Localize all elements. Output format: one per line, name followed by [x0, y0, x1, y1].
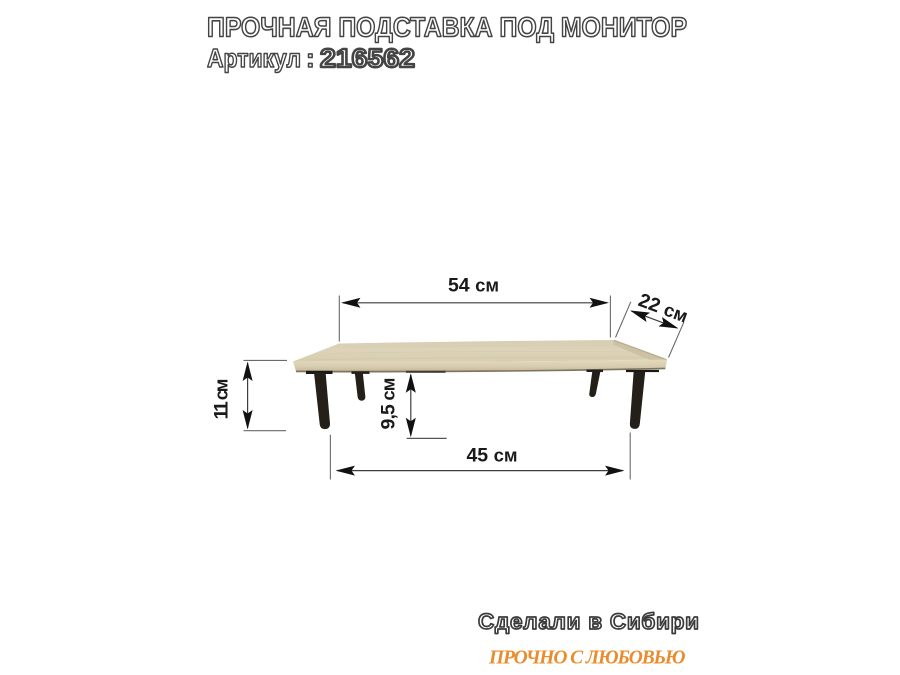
svg-text:11 см: 11 см [211, 379, 233, 420]
svg-text:216562: 216562 [320, 43, 415, 73]
svg-text:ПРОЧНАЯ ПОДСТАВКА ПОД МОНИТОР: ПРОЧНАЯ ПОДСТАВКА ПОД МОНИТОР [207, 12, 687, 43]
svg-text:9,5 см: 9,5 см [378, 378, 400, 430]
svg-text:54 см: 54 см [448, 275, 499, 297]
svg-text::: : [306, 43, 315, 73]
svg-text:Сделали в Сибири: Сделали в Сибири [478, 609, 699, 634]
svg-text:45 см: 45 см [466, 445, 517, 467]
svg-text:Артикул: Артикул [207, 43, 301, 73]
svg-text:ПРОЧНО С ЛЮБОВЬЮ: ПРОЧНО С ЛЮБОВЬЮ [488, 648, 687, 669]
